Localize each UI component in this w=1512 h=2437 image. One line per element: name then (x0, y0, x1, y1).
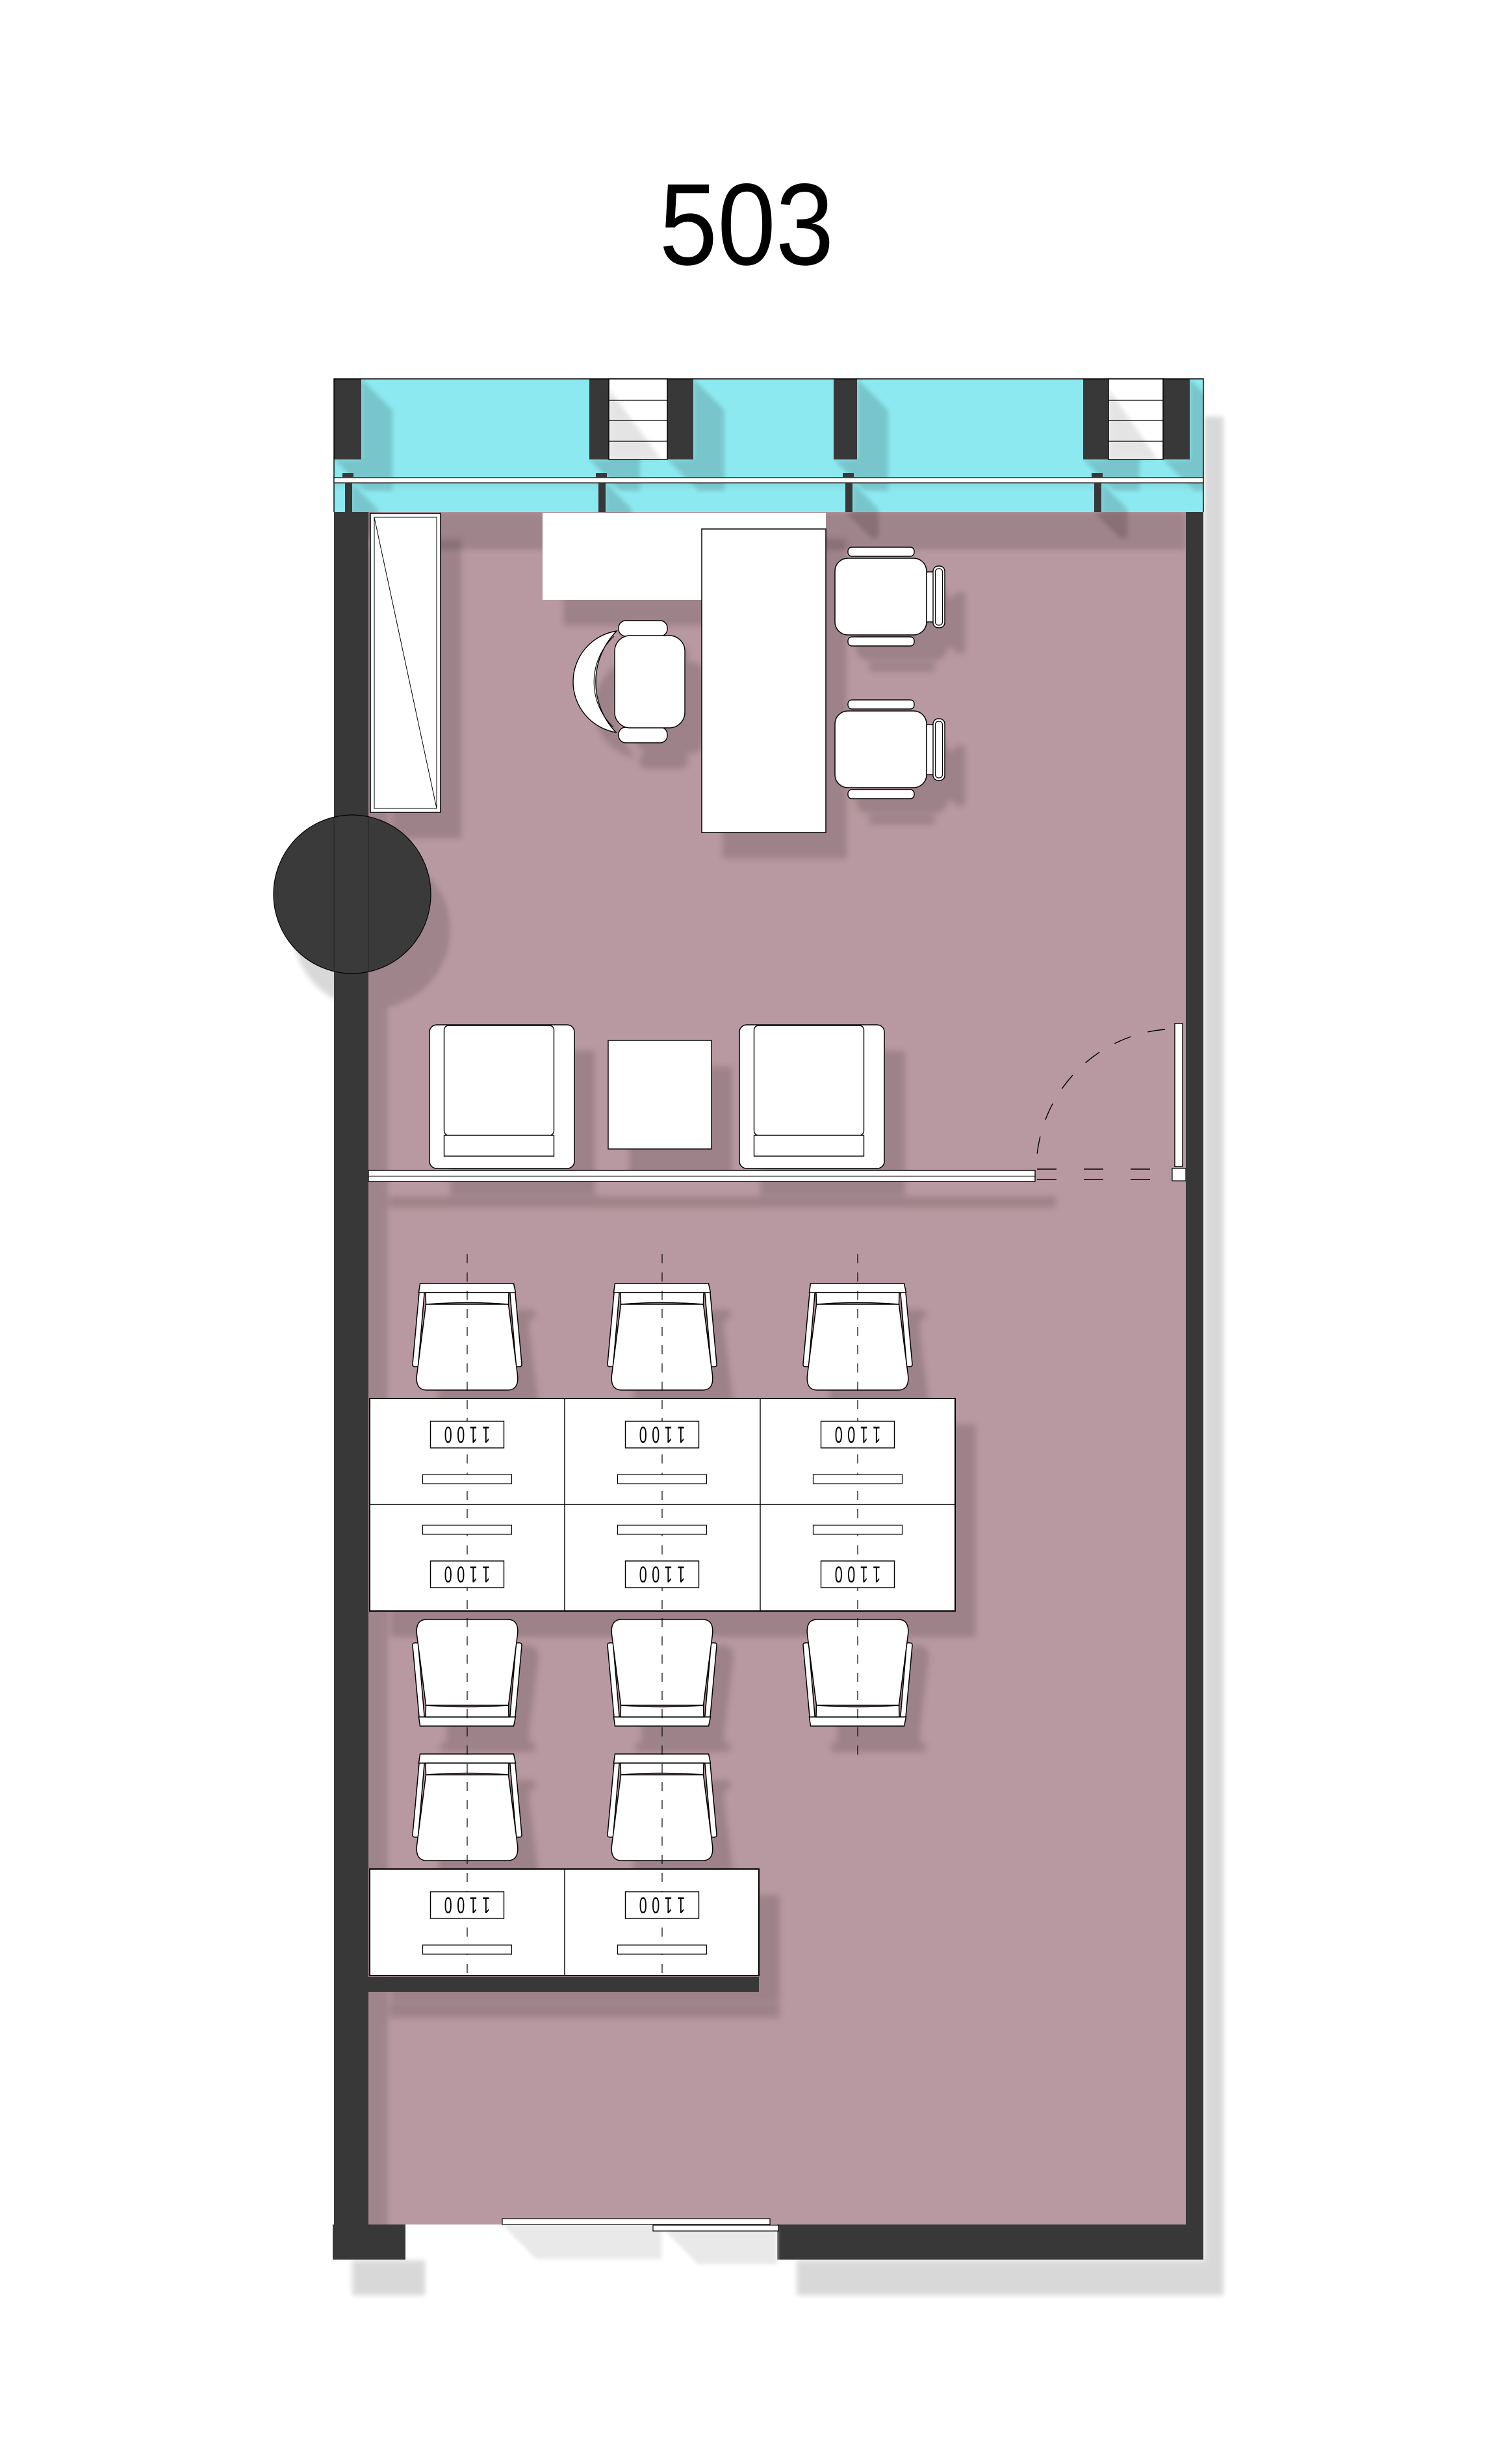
svg-text:0: 0 (444, 1892, 452, 1916)
svg-text:0: 0 (652, 1561, 660, 1586)
svg-text:1: 1 (873, 1421, 880, 1446)
svg-text:1: 1 (665, 1421, 673, 1446)
svg-text:0: 0 (457, 1421, 465, 1446)
svg-text:0: 0 (639, 1421, 647, 1446)
svg-text:0: 0 (652, 1892, 660, 1916)
svg-text:0: 0 (847, 1561, 855, 1586)
svg-text:0: 0 (835, 1561, 843, 1586)
svg-text:0: 0 (847, 1421, 855, 1446)
svg-text:0: 0 (639, 1561, 647, 1586)
svg-text:0: 0 (639, 1892, 647, 1916)
svg-text:503: 503 (660, 160, 834, 290)
svg-text:1: 1 (873, 1561, 880, 1586)
svg-text:0: 0 (457, 1892, 465, 1916)
svg-text:1: 1 (677, 1421, 685, 1446)
svg-text:0: 0 (835, 1421, 843, 1446)
svg-text:1: 1 (482, 1561, 490, 1586)
svg-text:1: 1 (677, 1561, 685, 1586)
svg-text:1: 1 (470, 1892, 478, 1916)
svg-text:0: 0 (652, 1421, 660, 1446)
svg-text:1: 1 (677, 1892, 685, 1916)
svg-text:1: 1 (470, 1421, 478, 1446)
svg-text:1: 1 (470, 1561, 478, 1586)
svg-text:0: 0 (444, 1421, 452, 1446)
svg-text:1: 1 (482, 1892, 490, 1916)
svg-text:1: 1 (860, 1421, 868, 1446)
svg-text:1: 1 (482, 1421, 490, 1446)
svg-text:1: 1 (665, 1561, 673, 1586)
svg-text:0: 0 (457, 1561, 465, 1586)
svg-text:0: 0 (444, 1561, 452, 1586)
svg-text:1: 1 (665, 1892, 673, 1916)
svg-text:1: 1 (860, 1561, 868, 1586)
